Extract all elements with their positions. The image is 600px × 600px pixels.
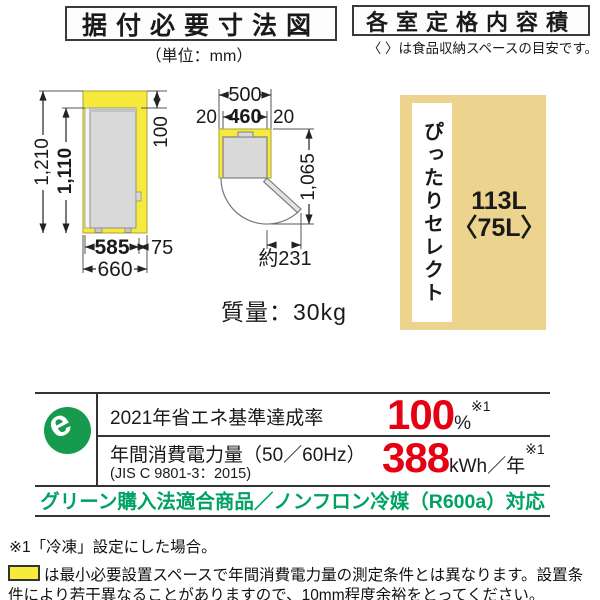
hinge-notch — [238, 132, 253, 137]
dim-door-open-depth: 1,065 — [298, 153, 319, 201]
dim-right-clearance: 20 — [273, 107, 294, 128]
installation-dimensions-title: 据付必要寸法図 — [65, 6, 337, 41]
fridge-body — [90, 108, 136, 228]
energy-saving-emark-icon: e — [44, 407, 91, 454]
dim-top-clearance: 100 — [151, 116, 172, 148]
compartment-name: ぴったりセレクト — [418, 121, 447, 305]
spec-sheet: 据付必要寸法図 （単位：mm） 各室定格内容積 〈 〉は食品収納スペースの目安で… — [0, 0, 600, 600]
capacity-value: 113L — [452, 188, 546, 215]
energy-rating-panel: e 2021年省エネ基準達成率 100%※1 年間消費電力量（50／60Hz） … — [35, 392, 550, 517]
consumption-unit: kWh／年 — [449, 456, 525, 477]
green-compliance-note: グリーン購入法適合商品／ノンフロン冷媒（R600a）対応 — [35, 485, 550, 514]
dim-total-width: 660 — [97, 258, 132, 281]
emark-letter: e — [40, 401, 78, 448]
compartment-name-strip: ぴったりセレクト — [412, 103, 452, 322]
dim-body-height: 1,110 — [55, 148, 76, 195]
title-text: 各室定格内容積 — [366, 5, 576, 37]
consumption-value: 388 — [382, 434, 449, 481]
dim-door-protrusion: 約231 — [258, 247, 311, 270]
compartment-capacity-box: ぴったりセレクト 113L 〈75L〉 — [400, 95, 546, 330]
title-text: 据付必要寸法図 — [82, 6, 320, 42]
achievement-value: 100 — [387, 391, 454, 438]
dim-body-width: 460 — [228, 106, 261, 128]
weight-label: 質量：30kg — [221, 293, 347, 327]
achievement-value-group: 100%※1 — [387, 391, 491, 439]
capacity-note: 〈 〉は食品収納スペースの目安です。 — [340, 37, 598, 57]
storage-space-value: 〈75L〉 — [452, 215, 546, 242]
dim-body-width: 585 — [94, 236, 129, 259]
dim-total-height: 1,210 — [32, 138, 53, 186]
door-edge — [85, 108, 90, 228]
unit-note: （単位：mm） — [65, 42, 333, 66]
open-door — [264, 178, 301, 213]
footnote-ref: ※1 — [525, 441, 545, 457]
dim-side-clearance: 75 — [151, 237, 173, 259]
footnote-2-text: は最小必要設置スペースで年間消費電力量の測定条件とは異なります。設置条件により若… — [8, 567, 583, 600]
footnote-ref: ※1 — [471, 398, 491, 414]
achievement-label: 2021年省エネ基準達成率 — [110, 403, 323, 430]
yellow-clearance-swatch-icon — [8, 565, 40, 581]
fridge-body — [223, 137, 267, 178]
consumption-value-group: 388kWh／年※1 — [382, 434, 545, 482]
hinge-tab — [136, 192, 141, 201]
dim-left-clearance: 20 — [196, 107, 217, 128]
footnote-2: は最小必要設置スペースで年間消費電力量の測定条件とは異なります。設置条件により若… — [8, 565, 596, 600]
capacity-values: 113L 〈75L〉 — [452, 188, 546, 242]
top-view-diagram: 500 20 460 20 1,065 約231 — [185, 82, 355, 282]
dim-total-width: 500 — [228, 84, 261, 106]
divider-vertical — [96, 394, 98, 485]
compartment-capacity-title: 各室定格内容積 — [352, 5, 590, 36]
consumption-standard: (JIS C 9801-3：2015) — [110, 462, 251, 483]
foot-left — [95, 228, 102, 233]
footnote-1: ※1「冷凍」設定にした場合。 — [9, 538, 217, 558]
foot-right — [125, 228, 131, 233]
front-view-diagram: 1,210 1,110 100 585 75 660 — [15, 80, 205, 295]
fridge-top-band — [90, 108, 136, 112]
achievement-unit: % — [454, 413, 471, 434]
